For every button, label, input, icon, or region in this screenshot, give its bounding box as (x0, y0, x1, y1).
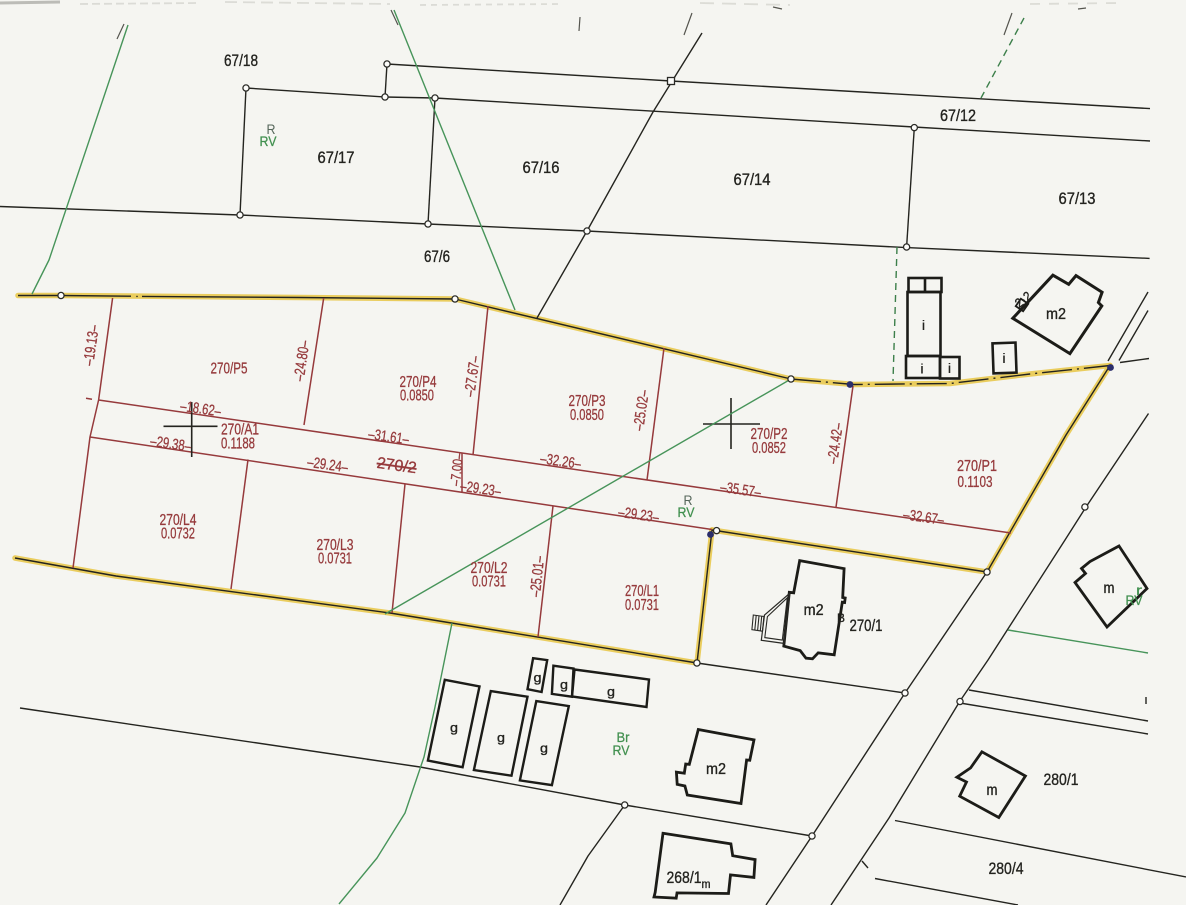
svg-text:g: g (497, 730, 505, 745)
svg-text:g: g (534, 670, 542, 685)
svg-text:g: g (450, 720, 458, 735)
svg-text:0.0731: 0.0731 (625, 597, 659, 614)
svg-text:270/P1: 270/P1 (957, 458, 997, 475)
svg-text:RV: RV (613, 743, 630, 758)
svg-text:0.0852: 0.0852 (752, 440, 786, 457)
svg-text:i: i (922, 317, 926, 333)
svg-text:m: m (702, 877, 711, 891)
svg-text:280/4: 280/4 (989, 860, 1024, 878)
svg-text:270/P5: 270/P5 (211, 361, 248, 378)
svg-text:0.0731: 0.0731 (472, 574, 506, 591)
svg-text:67/12: 67/12 (940, 107, 976, 125)
svg-text:g: g (540, 741, 548, 756)
svg-text:67/16: 67/16 (523, 159, 560, 177)
svg-text:m: m (987, 782, 998, 799)
svg-text:0.0850: 0.0850 (570, 407, 604, 424)
svg-text:g: g (560, 677, 568, 692)
svg-text:0.0850: 0.0850 (400, 388, 434, 405)
svg-text:m2: m2 (804, 602, 824, 619)
svg-text:i: i (1002, 350, 1006, 366)
svg-text:270/1: 270/1 (850, 617, 883, 635)
svg-text:67/18: 67/18 (224, 52, 258, 70)
svg-text:67/14: 67/14 (734, 171, 771, 189)
svg-text:m: m (1104, 580, 1115, 597)
svg-text:67/17: 67/17 (318, 149, 355, 167)
svg-text:g: g (607, 684, 615, 699)
svg-text:RV: RV (260, 134, 277, 149)
svg-text:i: i (948, 360, 952, 376)
svg-text:i: i (920, 361, 924, 377)
svg-text:67/6: 67/6 (424, 248, 450, 266)
svg-text:0.0732: 0.0732 (161, 526, 195, 543)
svg-text:0.1188: 0.1188 (221, 436, 255, 453)
svg-text:B: B (837, 611, 845, 625)
svg-text:0.1103: 0.1103 (958, 474, 993, 491)
svg-text:RV: RV (1126, 593, 1143, 608)
svg-text:268/1: 268/1 (667, 869, 702, 887)
svg-text:0.0731: 0.0731 (318, 551, 352, 568)
svg-text:m2: m2 (1046, 306, 1066, 323)
svg-text:RV: RV (678, 505, 695, 520)
svg-text:67/13: 67/13 (1059, 190, 1096, 208)
svg-text:m2: m2 (706, 761, 726, 778)
svg-text:280/1: 280/1 (1044, 771, 1079, 789)
